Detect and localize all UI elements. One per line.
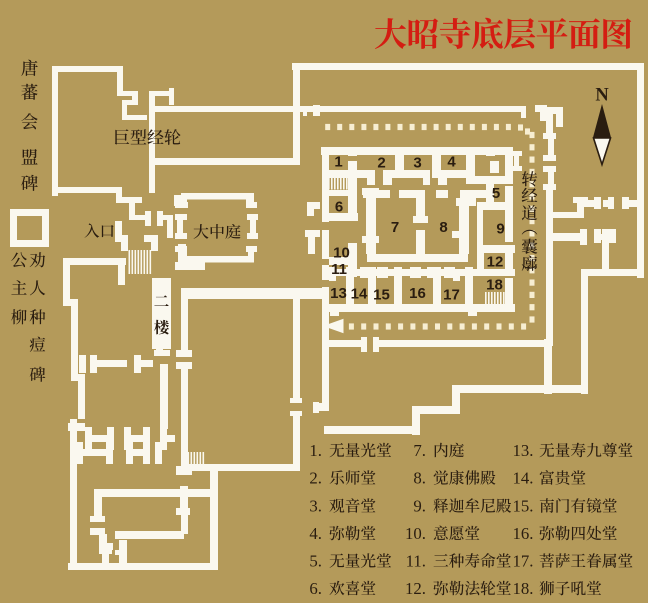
svg-text:4: 4 [447,153,456,170]
svg-text:2.: 2. [309,469,322,488]
svg-text:11.: 11. [406,552,426,571]
svg-text:9: 9 [496,220,504,237]
svg-text:14.: 14. [513,469,534,488]
svg-text:16: 16 [409,285,426,302]
svg-text:14: 14 [351,285,368,302]
svg-text:8: 8 [439,219,447,236]
svg-text:13.: 13. [513,441,534,460]
svg-text:7.: 7. [413,441,426,460]
svg-text:15.: 15. [513,497,534,516]
svg-text:5.: 5. [309,552,322,571]
svg-text:3: 3 [413,154,421,171]
svg-text:12: 12 [487,253,504,270]
svg-text:6.: 6. [309,579,322,598]
svg-text:18: 18 [486,276,503,293]
svg-text:11: 11 [331,261,347,278]
svg-text:7: 7 [391,219,399,236]
svg-text:17.: 17. [513,552,534,571]
svg-text:N: N [595,86,609,106]
svg-text:5: 5 [492,185,500,202]
svg-text:3.: 3. [309,497,322,516]
svg-text:18.: 18. [513,579,534,598]
svg-text:17: 17 [443,286,460,303]
svg-text:8.: 8. [413,469,426,488]
svg-text:10: 10 [333,244,350,261]
svg-text:1.: 1. [309,441,322,460]
svg-text:2: 2 [377,154,385,171]
svg-text:10.: 10. [405,524,426,543]
svg-text:1: 1 [334,153,342,170]
svg-text:16.: 16. [513,524,534,543]
svg-text:9.: 9. [413,497,426,516]
svg-text:4.: 4. [309,524,322,543]
svg-text:15: 15 [373,286,390,303]
svg-text:12.: 12. [405,579,426,598]
svg-text:13: 13 [330,285,347,302]
svg-text:6: 6 [335,198,343,215]
